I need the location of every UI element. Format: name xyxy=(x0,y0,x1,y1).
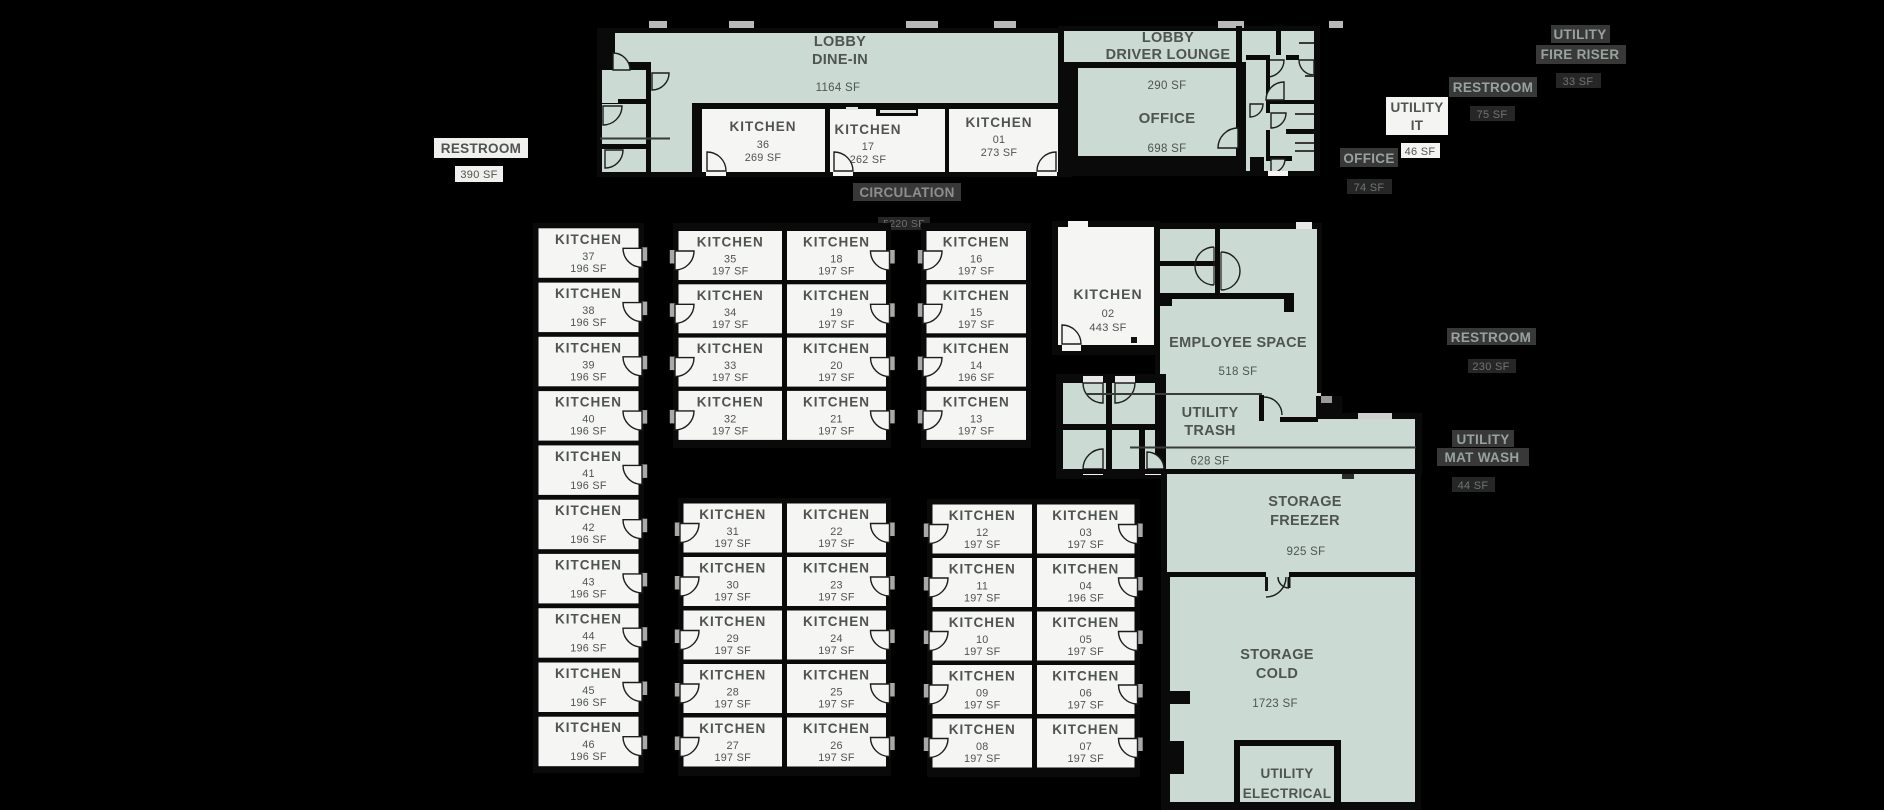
svg-text:LOBBY: LOBBY xyxy=(814,34,866,50)
svg-text:33 SF: 33 SF xyxy=(1563,76,1594,88)
svg-text:KITCHEN: KITCHEN xyxy=(699,668,766,683)
svg-text:KITCHEN: KITCHEN xyxy=(943,394,1010,409)
svg-text:KITCHEN: KITCHEN xyxy=(1052,669,1119,684)
svg-text:197 SF: 197 SF xyxy=(964,539,1001,551)
svg-text:KITCHEN: KITCHEN xyxy=(1052,562,1119,577)
svg-text:23: 23 xyxy=(830,580,843,592)
svg-text:09: 09 xyxy=(976,688,989,700)
svg-text:11: 11 xyxy=(976,581,988,593)
svg-text:197 SF: 197 SF xyxy=(818,592,855,604)
svg-text:290 SF: 290 SF xyxy=(1148,80,1187,92)
svg-text:269 SF: 269 SF xyxy=(745,152,782,164)
svg-text:17: 17 xyxy=(862,141,875,153)
svg-text:196 SF: 196 SF xyxy=(570,426,607,438)
svg-text:1164 SF: 1164 SF xyxy=(816,82,861,94)
svg-text:1723 SF: 1723 SF xyxy=(1252,698,1298,710)
svg-text:197 SF: 197 SF xyxy=(818,699,855,711)
svg-text:KITCHEN: KITCHEN xyxy=(555,503,622,518)
svg-text:04: 04 xyxy=(1079,581,1092,593)
svg-text:27: 27 xyxy=(726,740,739,752)
svg-text:KITCHEN: KITCHEN xyxy=(803,341,870,356)
svg-text:196 SF: 196 SF xyxy=(570,317,607,329)
svg-text:KITCHEN: KITCHEN xyxy=(803,288,870,303)
svg-text:KITCHEN: KITCHEN xyxy=(949,562,1016,577)
svg-text:40: 40 xyxy=(582,414,595,426)
svg-text:35: 35 xyxy=(724,254,737,266)
svg-text:197 SF: 197 SF xyxy=(958,319,995,331)
svg-text:KITCHEN: KITCHEN xyxy=(803,721,870,736)
svg-text:16: 16 xyxy=(970,254,983,266)
svg-text:KITCHEN: KITCHEN xyxy=(943,288,1010,303)
svg-text:197 SF: 197 SF xyxy=(714,699,751,711)
svg-text:01: 01 xyxy=(993,134,1006,146)
svg-text:25: 25 xyxy=(830,687,843,699)
svg-text:32: 32 xyxy=(724,413,737,425)
svg-text:37: 37 xyxy=(582,251,595,263)
svg-text:197 SF: 197 SF xyxy=(818,645,855,657)
svg-text:RESTROOM: RESTROOM xyxy=(1451,330,1531,345)
svg-text:03: 03 xyxy=(1079,527,1092,539)
svg-text:KITCHEN: KITCHEN xyxy=(697,394,764,409)
svg-text:KITCHEN: KITCHEN xyxy=(803,507,870,522)
svg-text:34: 34 xyxy=(724,307,737,319)
svg-text:KITCHEN: KITCHEN xyxy=(1052,722,1119,737)
svg-text:197 SF: 197 SF xyxy=(958,425,995,437)
svg-text:29: 29 xyxy=(726,633,739,645)
svg-text:41: 41 xyxy=(582,468,595,480)
svg-text:19: 19 xyxy=(830,307,843,319)
svg-text:KITCHEN: KITCHEN xyxy=(835,122,902,137)
svg-text:18: 18 xyxy=(830,254,843,266)
svg-text:KITCHEN: KITCHEN xyxy=(949,722,1016,737)
svg-text:KITCHEN: KITCHEN xyxy=(555,286,622,301)
svg-text:UTILITY: UTILITY xyxy=(1456,432,1509,447)
svg-text:197 SF: 197 SF xyxy=(818,425,855,437)
svg-text:197 SF: 197 SF xyxy=(818,266,855,278)
svg-text:MAT WASH: MAT WASH xyxy=(1445,450,1520,465)
svg-text:KITCHEN: KITCHEN xyxy=(555,232,622,247)
svg-text:KITCHEN: KITCHEN xyxy=(943,235,1010,250)
svg-text:197 SF: 197 SF xyxy=(1067,700,1104,712)
svg-text:197 SF: 197 SF xyxy=(712,372,749,384)
svg-text:44: 44 xyxy=(582,631,595,643)
svg-text:KITCHEN: KITCHEN xyxy=(555,340,622,355)
svg-text:698 SF: 698 SF xyxy=(1148,143,1187,155)
svg-text:15: 15 xyxy=(970,307,983,319)
svg-text:44 SF: 44 SF xyxy=(1458,480,1489,492)
svg-text:KITCHEN: KITCHEN xyxy=(555,666,622,681)
svg-text:RESTROOM: RESTROOM xyxy=(1453,80,1533,95)
svg-text:197 SF: 197 SF xyxy=(714,538,751,550)
svg-text:EMPLOYEE SPACE: EMPLOYEE SPACE xyxy=(1169,335,1307,351)
svg-text:39: 39 xyxy=(582,359,595,371)
svg-text:DINE-IN: DINE-IN xyxy=(812,52,868,68)
svg-text:197 SF: 197 SF xyxy=(964,753,1001,765)
svg-text:KITCHEN: KITCHEN xyxy=(699,721,766,736)
svg-text:43: 43 xyxy=(582,576,595,588)
svg-text:197 SF: 197 SF xyxy=(818,538,855,550)
svg-text:197 SF: 197 SF xyxy=(712,266,749,278)
svg-text:OFFICE: OFFICE xyxy=(1139,110,1196,127)
svg-text:10: 10 xyxy=(976,634,989,646)
svg-text:RESTROOM: RESTROOM xyxy=(441,141,521,156)
svg-text:KITCHEN: KITCHEN xyxy=(943,341,1010,356)
svg-text:46 SF: 46 SF xyxy=(1405,146,1436,158)
svg-text:45: 45 xyxy=(582,685,595,697)
svg-text:FIRE RISER: FIRE RISER xyxy=(1541,47,1620,62)
svg-text:443 SF: 443 SF xyxy=(1089,322,1126,334)
svg-text:197 SF: 197 SF xyxy=(818,372,855,384)
svg-text:196 SF: 196 SF xyxy=(570,588,607,600)
svg-text:197 SF: 197 SF xyxy=(958,266,995,278)
svg-text:197 SF: 197 SF xyxy=(714,752,751,764)
svg-text:KITCHEN: KITCHEN xyxy=(697,341,764,356)
svg-text:KITCHEN: KITCHEN xyxy=(555,557,622,572)
svg-text:KITCHEN: KITCHEN xyxy=(699,614,766,629)
svg-text:628 SF: 628 SF xyxy=(1191,456,1230,468)
svg-text:197 SF: 197 SF xyxy=(818,319,855,331)
svg-text:273 SF: 273 SF xyxy=(981,147,1018,159)
svg-text:74 SF: 74 SF xyxy=(1354,182,1385,194)
svg-text:12: 12 xyxy=(976,527,989,539)
svg-text:KITCHEN: KITCHEN xyxy=(966,115,1033,130)
svg-text:46: 46 xyxy=(582,739,595,751)
svg-text:KITCHEN: KITCHEN xyxy=(803,614,870,629)
svg-text:30: 30 xyxy=(726,580,739,592)
svg-text:KITCHEN: KITCHEN xyxy=(555,449,622,464)
svg-text:230 SF: 230 SF xyxy=(1472,361,1509,373)
svg-text:KITCHEN: KITCHEN xyxy=(730,119,797,134)
svg-text:FREEZER: FREEZER xyxy=(1270,513,1340,529)
svg-text:20: 20 xyxy=(830,360,843,372)
svg-text:390 SF: 390 SF xyxy=(460,169,497,181)
svg-text:196 SF: 196 SF xyxy=(1067,593,1104,605)
svg-text:06: 06 xyxy=(1079,688,1092,700)
svg-text:196 SF: 196 SF xyxy=(570,263,607,275)
svg-text:197 SF: 197 SF xyxy=(1067,539,1104,551)
svg-text:518 SF: 518 SF xyxy=(1219,366,1258,378)
svg-text:197 SF: 197 SF xyxy=(964,646,1001,658)
svg-text:STORAGE: STORAGE xyxy=(1240,647,1314,663)
svg-text:KITCHEN: KITCHEN xyxy=(949,508,1016,523)
svg-text:KITCHEN: KITCHEN xyxy=(1073,286,1142,302)
svg-text:KITCHEN: KITCHEN xyxy=(803,235,870,250)
svg-text:24: 24 xyxy=(830,633,843,645)
svg-text:197 SF: 197 SF xyxy=(712,425,749,437)
svg-text:196 SF: 196 SF xyxy=(958,372,995,384)
svg-text:925 SF: 925 SF xyxy=(1287,546,1326,558)
svg-text:14: 14 xyxy=(970,360,983,372)
svg-text:26: 26 xyxy=(830,740,843,752)
svg-text:36: 36 xyxy=(757,139,770,151)
svg-text:197 SF: 197 SF xyxy=(964,700,1001,712)
svg-text:KITCHEN: KITCHEN xyxy=(697,288,764,303)
svg-text:KITCHEN: KITCHEN xyxy=(803,561,870,576)
svg-text:UTILITY: UTILITY xyxy=(1390,100,1443,115)
svg-text:38: 38 xyxy=(582,305,595,317)
svg-text:262 SF: 262 SF xyxy=(850,154,887,166)
svg-text:33: 33 xyxy=(724,360,737,372)
svg-text:07: 07 xyxy=(1079,741,1092,753)
svg-text:LOBBY: LOBBY xyxy=(1142,30,1194,46)
svg-text:DRIVER LOUNGE: DRIVER LOUNGE xyxy=(1106,47,1231,63)
svg-text:COLD: COLD xyxy=(1256,666,1298,682)
svg-text:UTILITY: UTILITY xyxy=(1553,27,1606,42)
svg-text:31: 31 xyxy=(726,526,739,538)
svg-text:UTILITY: UTILITY xyxy=(1182,405,1239,421)
svg-text:KITCHEN: KITCHEN xyxy=(555,720,622,735)
svg-text:13: 13 xyxy=(970,413,983,425)
svg-text:ELECTRICAL: ELECTRICAL xyxy=(1243,786,1332,801)
svg-text:CIRCULATION: CIRCULATION xyxy=(859,185,954,200)
svg-text:KITCHEN: KITCHEN xyxy=(1052,615,1119,630)
svg-text:05: 05 xyxy=(1079,634,1092,646)
svg-text:196 SF: 196 SF xyxy=(570,697,607,709)
svg-text:196 SF: 196 SF xyxy=(570,534,607,546)
svg-text:TRASH: TRASH xyxy=(1184,423,1235,439)
svg-text:197 SF: 197 SF xyxy=(714,592,751,604)
svg-text:196 SF: 196 SF xyxy=(570,371,607,383)
svg-text:197 SF: 197 SF xyxy=(712,319,749,331)
svg-text:08: 08 xyxy=(976,741,989,753)
svg-text:KITCHEN: KITCHEN xyxy=(555,395,622,410)
svg-text:197 SF: 197 SF xyxy=(714,645,751,657)
svg-text:KITCHEN: KITCHEN xyxy=(803,668,870,683)
svg-text:21: 21 xyxy=(830,413,843,425)
svg-text:KITCHEN: KITCHEN xyxy=(555,612,622,627)
svg-text:KITCHEN: KITCHEN xyxy=(699,561,766,576)
svg-text:196 SF: 196 SF xyxy=(570,751,607,763)
svg-text:IT: IT xyxy=(1411,118,1424,133)
svg-text:22: 22 xyxy=(830,526,843,538)
svg-text:75 SF: 75 SF xyxy=(1477,109,1508,121)
svg-text:KITCHEN: KITCHEN xyxy=(697,235,764,250)
svg-text:28: 28 xyxy=(726,687,739,699)
svg-text:KITCHEN: KITCHEN xyxy=(1052,508,1119,523)
svg-text:KITCHEN: KITCHEN xyxy=(803,394,870,409)
svg-text:196 SF: 196 SF xyxy=(570,643,607,655)
svg-text:02: 02 xyxy=(1102,308,1115,320)
svg-text:197 SF: 197 SF xyxy=(1067,646,1104,658)
svg-text:KITCHEN: KITCHEN xyxy=(949,615,1016,630)
svg-text:KITCHEN: KITCHEN xyxy=(949,669,1016,684)
svg-text:KITCHEN: KITCHEN xyxy=(699,507,766,522)
svg-text:42: 42 xyxy=(582,522,595,534)
svg-text:197 SF: 197 SF xyxy=(818,752,855,764)
svg-text:OFFICE: OFFICE xyxy=(1343,151,1394,166)
svg-text:196 SF: 196 SF xyxy=(570,480,607,492)
svg-text:UTILITY: UTILITY xyxy=(1260,766,1313,781)
svg-text:197 SF: 197 SF xyxy=(1067,753,1104,765)
svg-text:STORAGE: STORAGE xyxy=(1268,494,1342,510)
svg-text:197 SF: 197 SF xyxy=(964,593,1001,605)
